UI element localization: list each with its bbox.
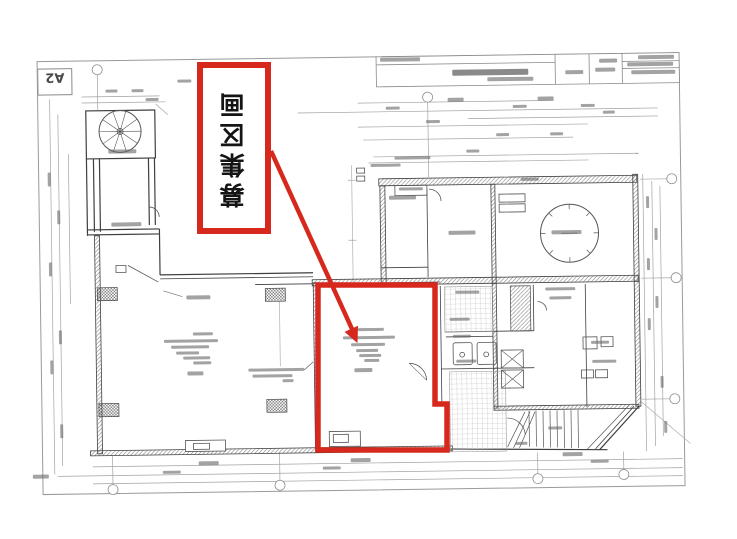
highlighted-area-outline	[318, 285, 447, 450]
scanned-floor-plan-page: A2 募集区画	[0, 0, 737, 539]
annotation-callout-text: 募集区画	[216, 88, 252, 208]
annotation-graphics	[0, 0, 737, 539]
annotation-callout-box: 募集区画	[197, 62, 271, 234]
annotation-layer: 募集区画	[0, 0, 737, 539]
annotation-arrow	[271, 151, 358, 342]
